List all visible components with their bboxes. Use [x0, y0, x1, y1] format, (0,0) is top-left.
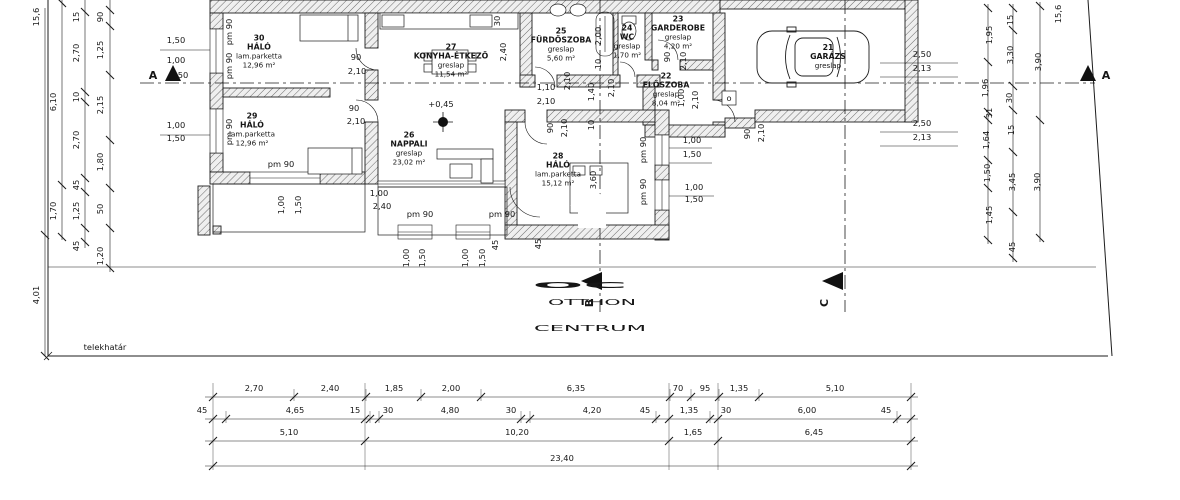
dim-label: 1,95 — [984, 26, 994, 44]
room-label: 4,20 m² — [664, 42, 692, 51]
dim-label: 2,70 — [71, 44, 81, 62]
bed — [308, 148, 362, 174]
room-label: 15,12 m² — [542, 179, 575, 188]
room-label: HÁLÓ — [247, 43, 271, 52]
section-marker-label: A — [1102, 69, 1111, 82]
dim-label: 2,15 — [95, 96, 105, 114]
dim-label: 90 — [349, 103, 360, 113]
dim-label: 50 — [95, 204, 105, 215]
room-label: 29 — [247, 112, 258, 121]
dim-label: 2,00 — [593, 27, 603, 45]
dim-label: 15 — [71, 12, 81, 23]
dim-label: 2,10 — [562, 72, 572, 90]
dim-label: 1,00 — [167, 55, 185, 65]
dim-label: 1,50 — [685, 194, 703, 204]
dim-label: 2,10 — [537, 96, 555, 106]
dim-label: 1,00 — [370, 188, 388, 198]
door-arc — [525, 122, 547, 144]
dim-label: pm 90 — [489, 209, 516, 219]
dim-label: 6,00 — [798, 405, 816, 415]
room-label: lam.parketta — [535, 170, 581, 179]
sofa — [481, 159, 493, 183]
dim-label: 1,50 — [417, 249, 427, 267]
dim-label: 90 — [351, 52, 362, 62]
dim-label: 5,10 — [826, 383, 844, 393]
door-arc — [620, 62, 635, 77]
dim-label: 90 — [662, 52, 672, 63]
section-marker-label: C — [818, 299, 831, 307]
dim-label: 6,35 — [567, 383, 585, 393]
room-label: greslap — [614, 42, 641, 51]
room-label: GARDEROBE — [651, 24, 705, 33]
dim-label: 1,50 — [167, 35, 185, 45]
dim-label: 45 — [881, 405, 892, 415]
dim-label: 1,50 — [683, 149, 701, 159]
watermark-text: OTTHON — [548, 297, 636, 307]
dim-label: 95 — [700, 383, 711, 393]
dim-label: 1,70 — [48, 202, 58, 220]
room-label: KONYHA-ÉTKEZŐ — [414, 52, 489, 61]
dim-label: 1,64 — [981, 131, 991, 149]
dim-label: 31 — [984, 108, 994, 119]
room-label: 22 — [661, 72, 672, 81]
dim-label: 3,90 — [1032, 173, 1042, 191]
level-symbol — [433, 112, 453, 132]
sink — [570, 4, 586, 16]
dim-label: 10 — [586, 120, 596, 131]
dim-label: 2,10 — [678, 52, 688, 70]
dim-label: pm 90 — [224, 53, 234, 80]
section-arrow-c — [822, 272, 843, 290]
room-label: 30 — [254, 34, 265, 43]
room-label: 12,96 m² — [236, 139, 269, 148]
sofa — [437, 149, 493, 159]
dim-label: 30 — [1004, 93, 1014, 104]
dim-label: 23,40 — [550, 453, 574, 463]
dim-label: 70 — [673, 383, 684, 393]
dim-label: 30 — [721, 405, 732, 415]
watermark-text: CENTRUM — [534, 323, 646, 333]
room-label: ELŐSZOBA — [643, 81, 690, 90]
dim-label: 45 — [71, 241, 81, 252]
dim-label: 6,45 — [805, 427, 823, 437]
dim-label: 2,40 — [498, 43, 508, 61]
level-label: +0,45 — [428, 99, 453, 109]
section-marker-label: A — [149, 69, 158, 82]
dim-label: 1,20 — [95, 247, 105, 265]
dim-label: 4,80 — [441, 405, 459, 415]
dim-label: 10 — [71, 92, 81, 103]
room-label: greslap — [548, 45, 575, 54]
dim-label: 10,20 — [505, 427, 529, 437]
dim-label: 45 — [71, 180, 81, 191]
room-label: 23,02 m² — [393, 158, 426, 167]
room-label: 26 — [404, 131, 415, 140]
room-label: 28 — [553, 152, 564, 161]
dim-label: 15 — [350, 405, 361, 415]
dim-label: pm 90 — [224, 19, 234, 46]
dim-label: 1,50 — [477, 249, 487, 267]
room-label: 27 — [446, 43, 457, 52]
bed — [300, 15, 358, 41]
room-label: greslap — [438, 61, 465, 70]
dim-label: 90 — [95, 12, 105, 23]
dim-label: 1,85 — [385, 383, 403, 393]
dim-label: 15 — [1006, 125, 1016, 136]
dim-label: 1,50 — [293, 196, 303, 214]
dim-label: 2,10 — [690, 91, 700, 109]
dim-label: 2,40 — [321, 383, 339, 393]
dim-label: 2,10 — [347, 116, 365, 126]
room-label: FÜRDŐSZOBA — [531, 36, 592, 45]
room-label: 25 — [556, 27, 567, 36]
room-label: greslap — [815, 61, 842, 70]
dim-label: 30 — [383, 405, 394, 415]
dim-label: 30 — [506, 405, 517, 415]
room-label: 23 — [673, 15, 684, 24]
room-label: WC — [620, 33, 635, 42]
dim-label: 3,90 — [1033, 53, 1043, 71]
dim-label: 5,10 — [280, 427, 298, 437]
dim-label: 2,10 — [756, 124, 766, 142]
dim-label: 15,6 — [1053, 5, 1063, 23]
room-label: lam.parketta — [229, 130, 275, 139]
dim-label: 2,10 — [348, 66, 366, 76]
dim-label: 1,80 — [95, 153, 105, 171]
room-label: HÁLÓ — [240, 121, 264, 130]
dim-label: 3,30 — [1005, 46, 1015, 64]
dim-label: 1,40 — [586, 83, 596, 101]
dim-label: 1,45 — [984, 206, 994, 224]
dim-label: 1,50 — [982, 164, 992, 182]
dim-label: 6,10 — [48, 93, 58, 111]
dim-label: 2,00 — [442, 383, 460, 393]
room-label: greslap — [653, 90, 680, 99]
sink — [550, 4, 566, 16]
dim-label: 1,35 — [730, 383, 748, 393]
dim-label: 1,00 — [167, 120, 185, 130]
dim-label: pm 90 — [638, 137, 648, 164]
dim-label: 2,40 — [373, 201, 391, 211]
dim-label: 45 — [1007, 242, 1017, 253]
dim-label: 1,96 — [980, 79, 990, 97]
dim-label: 1,00 — [683, 135, 701, 145]
dim-label: 1,10 — [537, 82, 555, 92]
room-label: 5,60 m² — [547, 54, 575, 63]
dim-label: 45 — [640, 405, 651, 415]
dim-label: 2,13 — [913, 63, 931, 73]
dim-label: 90 — [545, 123, 555, 134]
dim-label: o — [726, 93, 731, 103]
dim-label: 2,50 — [913, 118, 931, 128]
dim-label: 15,6 — [31, 8, 41, 26]
room-label: greslap — [396, 149, 423, 158]
dim-label: 45 — [197, 405, 208, 415]
floor-plan-canvas: 2,702,401,852,006,3570951,355,10454,6515… — [0, 0, 1180, 500]
dim-label: 4,65 — [286, 405, 304, 415]
room-label: 24 — [622, 24, 633, 33]
dim-label: 45 — [490, 240, 500, 251]
dim-label: 2,70 — [71, 131, 81, 149]
dim-label: 15 — [1005, 15, 1015, 26]
dim-label: 50 — [178, 70, 189, 80]
room-label: 8,04 m² — [652, 99, 680, 108]
dim-label: 1,35 — [680, 405, 698, 415]
room-label: greslap — [665, 33, 692, 42]
floor-plan-page: { "watermark": { "logo": "OC", "line1": … — [0, 0, 1180, 500]
dim-label: 1,00 — [276, 196, 286, 214]
dim-label: 1,00 — [685, 182, 703, 192]
dim-label: 1,00 — [460, 249, 470, 267]
dim-label: 1,00 — [401, 249, 411, 267]
dim-label: 30 — [492, 16, 502, 27]
dim-label: pm 90 — [268, 159, 295, 169]
section-arrow-a-right — [1080, 65, 1096, 81]
dim-label: 1,25 — [71, 202, 81, 220]
dim-label: 3,45 — [1007, 173, 1017, 191]
dim-label: 2,70 — [245, 383, 263, 393]
room-label: NAPPALI — [390, 140, 427, 149]
dim-label: 10 — [593, 59, 603, 70]
room-label: lam.parketta — [236, 52, 282, 61]
room-label: 11,54 m² — [435, 70, 468, 79]
room-label: HÁLÓ — [546, 161, 570, 170]
dim-label: 1,25 — [95, 41, 105, 59]
dim-label: 4,01 — [31, 286, 41, 304]
dim-label: 2,13 — [913, 132, 931, 142]
dim-label: 2,50 — [913, 49, 931, 59]
dim-label: 90 — [742, 129, 752, 140]
room-label: GARÁZS — [810, 52, 846, 61]
dim-label: 2,10 — [606, 79, 616, 97]
dim-label: 1,50 — [167, 133, 185, 143]
plot-boundary-label: telekhatár — [84, 342, 127, 352]
dim-label: 4,20 — [583, 405, 601, 415]
dim-label: 3,60 — [588, 171, 598, 189]
dim-label: 2,10 — [559, 119, 569, 137]
room-label: 12,96 m² — [243, 61, 276, 70]
coffee-table — [450, 164, 472, 178]
dim-label: 1,65 — [684, 427, 702, 437]
dim-label: pm 90 — [407, 209, 434, 219]
dim-label: 45 — [533, 239, 543, 250]
watermark-logo: OC — [533, 280, 628, 290]
dim-label: pm 90 — [638, 179, 648, 206]
room-label: 21 — [823, 43, 834, 52]
room-label: 1,70 m² — [613, 51, 641, 60]
